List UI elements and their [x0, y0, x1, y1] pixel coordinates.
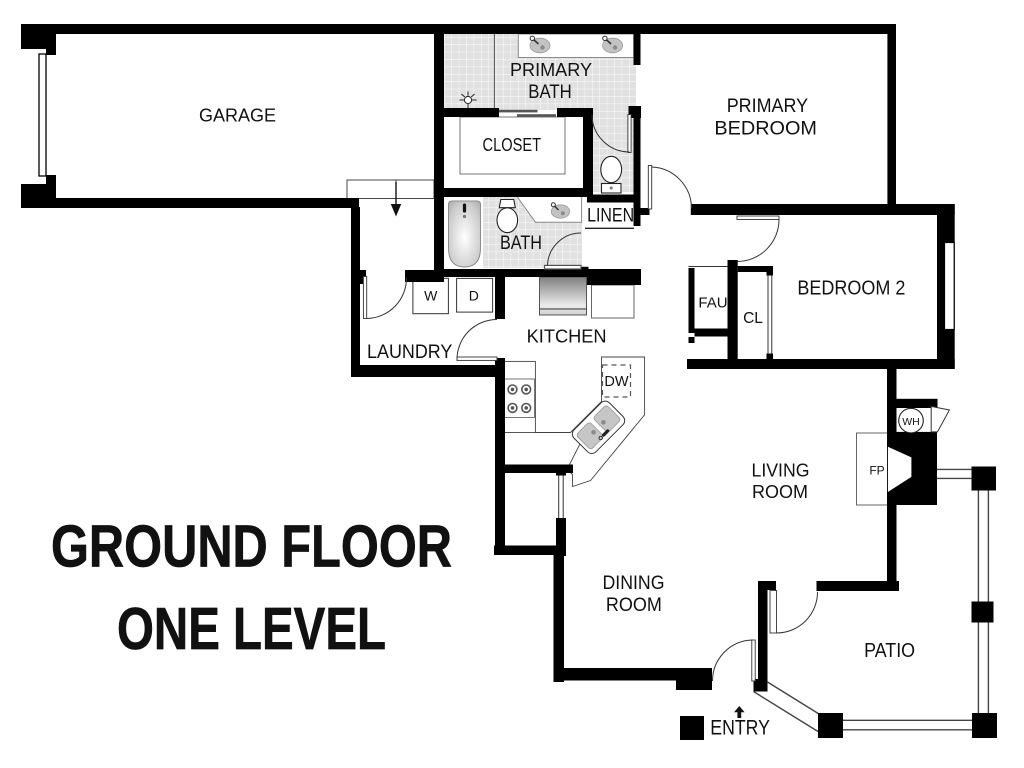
svg-text:ROOM: ROOM [606, 594, 662, 616]
svg-text:ONE LEVEL: ONE LEVEL [117, 596, 386, 662]
svg-text:LAUNDRY: LAUNDRY [367, 341, 452, 363]
svg-text:LINEN: LINEN [587, 205, 634, 227]
svg-text:FAU: FAU [698, 295, 727, 312]
svg-text:ENTRY: ENTRY [710, 716, 770, 739]
svg-text:DINING: DINING [603, 572, 665, 594]
svg-text:FP: FP [869, 463, 884, 477]
svg-text:CL: CL [743, 310, 763, 327]
svg-text:D: D [469, 288, 479, 304]
svg-text:CLOSET: CLOSET [483, 134, 542, 155]
svg-text:GROUND FLOOR: GROUND FLOOR [51, 513, 452, 579]
svg-text:PRIMARY: PRIMARY [727, 96, 809, 117]
svg-text:LIVING: LIVING [752, 460, 810, 481]
svg-text:BATH: BATH [500, 232, 542, 254]
svg-text:BEDROOM 2: BEDROOM 2 [797, 276, 905, 299]
svg-text:GARAGE: GARAGE [199, 106, 276, 126]
svg-text:PATIO: PATIO [864, 640, 915, 662]
svg-text:PRIMARY: PRIMARY [510, 60, 592, 81]
svg-text:W: W [424, 288, 438, 304]
svg-text:WH: WH [902, 416, 920, 428]
svg-text:BATH: BATH [528, 81, 572, 103]
svg-text:BEDROOM: BEDROOM [714, 118, 817, 139]
svg-text:ROOM: ROOM [752, 481, 808, 502]
svg-text:KITCHEN: KITCHEN [527, 327, 607, 348]
svg-text:DW: DW [604, 374, 628, 390]
